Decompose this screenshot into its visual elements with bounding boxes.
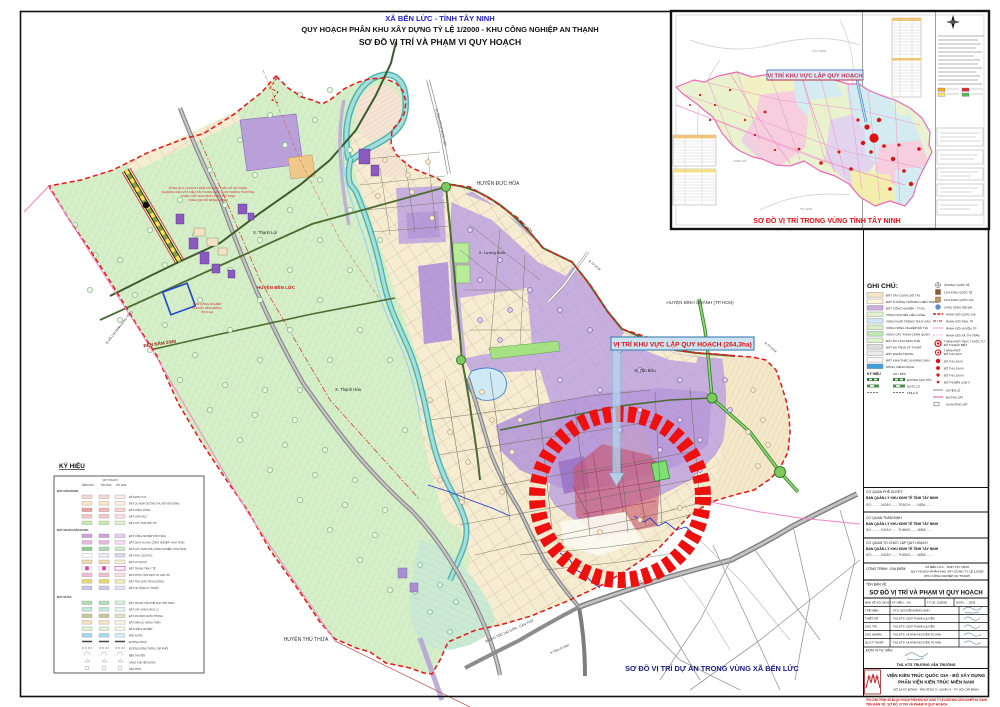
svg-text:NGÀY: ....2025: NGÀY: ....2025	[956, 601, 976, 605]
svg-text:ĐẤT PHỨC HỢP DỊCH VỤ GIẢI TRÍ: ĐẤT PHỨC HỢP DỊCH VỤ GIẢI TRÍ	[129, 574, 170, 577]
svg-text:ĐẤT NÔNG NGHIỆP: ĐẤT NÔNG NGHIỆP	[129, 628, 153, 631]
svg-text:ĐẤT CÔNG NGHIỆP KHO TÀNG: ĐẤT CÔNG NGHIỆP KHO TÀNG	[129, 535, 166, 538]
svg-text:RANH GIỚI TỈNH, TP: RANH GIỚI TỈNH, TP	[946, 319, 973, 324]
svg-text:VÙNG CÂY XANH CẢNH QUAN: VÙNG CÂY XANH CẢNH QUAN	[886, 331, 930, 336]
svg-text:ThS.KTS. HUỲNH NGUYỄN TÚ ANH: ThS.KTS. HUỲNH NGUYỄN TÚ ANH	[893, 640, 941, 645]
svg-text:THỂ HIỆN: THỂ HIỆN	[865, 608, 879, 613]
svg-text:QUỐC LỘ: QUỐC LỘ	[907, 384, 921, 389]
svg-text:ĐẤT DỊCH VỤ KHU CÔNG NGHIỆP -: ĐẤT DỊCH VỤ KHU CÔNG NGHIỆP - KHO TÀNG	[129, 542, 185, 545]
svg-text:TỶ LỆ: 1/25000: TỶ LỆ: 1/25000	[927, 600, 947, 605]
svg-text:QUY HOẠCH PHÂN KHU XÂY DỰNG TỶ: QUY HOẠCH PHÂN KHU XÂY DỰNG TỶ LỆ 1/2000	[911, 569, 984, 574]
svg-text:QUY HOẠCH: QUY HOẠCH	[102, 479, 117, 482]
svg-text:CẢNG CHUYÊN DÙNG: CẢNG CHUYÊN DÙNG	[129, 662, 156, 665]
svg-text:ĐẤT CÂY XANH KHU CÔNG NGHIỆP-: ĐẤT CÂY XANH KHU CÔNG NGHIỆP- KHO TÀNG	[129, 548, 186, 551]
svg-text:ĐẤT CÔNG NGHIỆP - TTCN: ĐẤT CÔNG NGHIỆP - TTCN	[886, 305, 925, 310]
svg-text:SỐ:..........NGÀY:.......TRÁCH: SỐ:..........NGÀY:.......TRÁCH:.......NĂ…	[866, 502, 932, 507]
svg-text:CƠ QUAN THẨM ĐỊNH: CƠ QUAN THẨM ĐỊNH	[866, 515, 902, 520]
svg-text:ĐÔ THỊ LOẠI III: ĐÔ THỊ LOẠI III	[944, 366, 964, 371]
svg-text:CƠ QUAN PHÊ DUYỆT:: CƠ QUAN PHÊ DUYỆT:	[866, 489, 903, 494]
svg-text:SỐ:..........NGÀY:.......THÁNG: SỐ:..........NGÀY:.......THÁNG:.......NĂ…	[866, 552, 932, 557]
svg-text:CỬA KHẨU QUỐC GIA: CỬA KHẨU QUỐC GIA	[944, 297, 974, 302]
svg-text:ĐÔ THỊ LOẠI IV: ĐÔ THỊ LOẠI IV	[944, 373, 964, 378]
svg-text:ĐẤT HẠ TẦNG KỸ THUẬT: ĐẤT HẠ TẦNG KỸ THUẬT	[129, 587, 159, 590]
svg-text:ĐƯỜNG NÔNG THÔN, CẤP PHỐI: ĐƯỜNG NÔNG THÔN, CẤP PHỐI	[129, 648, 168, 651]
svg-text:XÃ BẾN LỨC - TỈNH TÂY NINH: XÃ BẾN LỨC - TỈNH TÂY NINH	[385, 13, 495, 23]
svg-text:ĐẤT HẠ TẦNG KỸ THUẬT: ĐẤT HẠ TẦNG KỸ THUẬT	[886, 344, 922, 349]
svg-text:CỬA KHẨU QUỐC TẾ: CỬA KHẨU QUỐC TẾ	[944, 290, 972, 295]
svg-text:XÃ BẾN LỨC - TỈNH TÂY NINH: XÃ BẾN LỨC - TỈNH TÂY NINH	[925, 564, 969, 569]
svg-text:TỚI 2030: TỚI 2030	[116, 484, 127, 487]
svg-text:KTS. NGUYỄN ĐĂNG NINH: KTS. NGUYỄN ĐĂNG NINH	[893, 608, 930, 613]
svg-text:ĐẤT TRUNG TÂM Y TẾ: ĐẤT TRUNG TÂM Y TẾ	[129, 568, 156, 571]
svg-text:ĐẤT Ở NÔNG THÔN/DC HIỆN TRẠNG: ĐẤT Ở NÔNG THÔN/DC HIỆN TRẠNG	[886, 299, 940, 304]
svg-text:CẢNG SÔNG NỘI ĐỊA: CẢNG SÔNG NỘI ĐỊA	[944, 305, 972, 310]
svg-text:HUYỆN BÌNH CHÁNH (TP.HCM): HUYỆN BÌNH CHÁNH (TP.HCM)	[666, 298, 734, 305]
svg-text:VÙNG NÔNG NGHIỆP ĐÔ THỊ: VÙNG NÔNG NGHIỆP ĐÔ THỊ	[886, 325, 928, 330]
svg-text:SÂN PHƠI: SÂN PHƠI	[129, 668, 141, 671]
svg-text:QUY HOẠCH PHÂN KHU XÂY DỰNG TỶ: QUY HOẠCH PHÂN KHU XÂY DỰNG TỶ LỆ 1/2000…	[301, 25, 598, 34]
svg-text:HIỆN HỮU: HIỆN HỮU	[82, 484, 95, 487]
svg-text:ĐẤT CÔNG CỘNG: ĐẤT CÔNG CỘNG	[129, 509, 150, 512]
svg-text:BẾN THUYỀN: BẾN THUYỀN	[129, 655, 145, 658]
svg-text:ĐẤT TÔN GIÁO TÍN NGƯỠNG: ĐẤT TÔN GIÁO TÍN NGƯỠNG	[129, 581, 164, 584]
svg-text:VỊ TRÍ KHU VỰC LẬP QUY HOẠCH (: VỊ TRÍ KHU VỰC LẬP QUY HOẠCH (264,3ha)	[613, 340, 752, 349]
svg-text:(THEO QĐ SỐ 08/QĐ-UBND): (THEO QĐ SỐ 08/QĐ-UBND)	[188, 197, 228, 202]
svg-text:CÔNG TRÌNH - ĐỊA ĐIỂM:: CÔNG TRÌNH - ĐỊA ĐIỂM:	[866, 566, 906, 571]
svg-text:ĐẤT ĐƠN VỊ Ở: ĐẤT ĐƠN VỊ Ở	[129, 496, 147, 499]
svg-text:ĐÔ THỊ ĐẶC BIỆT: ĐÔ THỊ ĐẶC BIỆT	[944, 342, 967, 347]
svg-text:TP. HCM: TP. HCM	[800, 207, 812, 211]
svg-text:ĐƯỜNG NHỰA: ĐƯỜNG NHỰA	[129, 641, 147, 644]
svg-text:TÊN BẢN VẼ: SƠ ĐỒ VỊ TRÍ VÀ PH: TÊN BẢN VẼ: SƠ ĐỒ VỊ TRÍ VÀ PHẠM VI QUY …	[866, 702, 948, 707]
svg-text:ĐẤT DÂN DỤNG: ĐẤT DÂN DỤNG	[57, 488, 79, 493]
svg-text:ThS.KTS. HUỲNH NGUYỄN TÚ ANH: ThS.KTS. HUỲNH NGUYỄN TÚ ANH	[893, 632, 941, 637]
svg-text:RANH GIỚI XÃ, THỊ TRẤN: RANH GIỚI XÃ, THỊ TRẤN	[946, 333, 980, 338]
svg-text:ĐẤT KHO LOGISTIC: ĐẤT KHO LOGISTIC	[129, 555, 153, 558]
svg-text:ThS.KTS. NGÔ THANH QUYỀN: ThS.KTS. NGÔ THANH QUYỀN	[893, 624, 935, 629]
svg-text:ĐẤT KHAI THÁC KHOÁNG SẢN: ĐẤT KHAI THÁC KHOÁNG SẢN	[886, 357, 930, 362]
svg-text:ĐƯỜNG SẮT: ĐƯỜNG SẮT	[946, 395, 964, 400]
svg-text:CƠ QUAN TỔ CHỨC LẬP QUY HOẠCH: CƠ QUAN TỔ CHỨC LẬP QUY HOẠCH	[866, 540, 928, 545]
svg-text:ĐẤT KHÁC: ĐẤT KHÁC	[57, 594, 72, 599]
svg-text:BAN QUẢN LÝ KHU KINH TẾ TỈNH T: BAN QUẢN LÝ KHU KINH TẾ TỈNH TÂY NINH	[866, 495, 939, 500]
svg-text:KHU CÔNG NGHIỆP AN THẠNH: KHU CÔNG NGHIỆP AN THẠNH	[924, 573, 970, 578]
svg-text:HUYỆN LỘ: HUYỆN LỘ	[946, 388, 961, 393]
svg-text:KÝ HIỆU: ..AU: KÝ HIỆU: ..AU	[892, 600, 911, 605]
svg-text:ĐÔ THỊ LOẠI I: ĐÔ THỊ LOẠI I	[944, 351, 962, 356]
svg-text:ĐẤT GIÁO DỤC: ĐẤT GIÁO DỤC	[129, 516, 147, 519]
svg-text:ĐẤT NGOÀI DÂN DỤNG: ĐẤT NGOÀI DÂN DỤNG	[57, 527, 89, 532]
svg-text:ThS. KTS TRƯƠNG VĂN TRƯỜNG: ThS. KTS TRƯƠNG VĂN TRƯỜNG	[896, 662, 955, 667]
svg-text:LONG AN: LONG AN	[733, 159, 746, 163]
svg-text:ĐÔ THỊ LOẠI II: ĐÔ THỊ LOẠI II	[944, 359, 963, 364]
svg-text:KÝ HIỆU: KÝ HIỆU	[867, 371, 881, 376]
svg-text:CHỦ TRÌ: CHỦ TRÌ	[865, 624, 877, 629]
svg-text:ĐẤT CÂY XANH ĐÔ THỊ: ĐẤT CÂY XANH ĐÔ THỊ	[129, 522, 157, 525]
svg-text:SÔNG, KÊNH RẠCH: SÔNG, KÊNH RẠCH	[886, 364, 914, 369]
svg-text:ĐẤT NGHĨA TRANG: ĐẤT NGHĨA TRANG	[886, 351, 914, 356]
svg-text:(57,6 ha): (57,6 ha)	[201, 310, 213, 314]
svg-text:SỐ:..........NGÀY:.......THÁNG: SỐ:..........NGÀY:.......THÁNG:.......NĂ…	[866, 527, 932, 532]
svg-text:ĐẤT AN NINH QUỐC PHÒNG: ĐẤT AN NINH QUỐC PHÒNG	[129, 615, 163, 618]
svg-text:VÙNG NGUYÊN LIỆU CANH: VÙNG NGUYÊN LIỆU CANH	[886, 312, 925, 317]
svg-text:SƠ ĐỒ VỊ TRÍ VÀ PHẠM VI QUY HO: SƠ ĐỒ VỊ TRÍ VÀ PHẠM VI QUY HOẠCH	[359, 36, 521, 47]
svg-text:X. Thạnh Lợi: X. Thạnh Lợi	[253, 230, 277, 235]
svg-text:ĐẤT CƠ QUAN: ĐẤT CƠ QUAN	[129, 561, 147, 564]
svg-text:RANH GIỚI HUYỆN, TP: RANH GIỚI HUYỆN, TP	[946, 326, 977, 331]
svg-text:ĐƯỜNG CAO TỐC: ĐƯỜNG CAO TỐC	[907, 377, 931, 382]
svg-text:ĐẤT DÂN CƯ NÔNG THÔN: ĐẤT DÂN CƯ NÔNG THÔN	[129, 622, 161, 625]
svg-text:HUYỆN THỦ THỪA: HUYỆN THỦ THỪA	[284, 635, 329, 643]
svg-text:ĐÔ THỊ ĐẾN LOẠI V: ĐÔ THỊ ĐẾN LOẠI V	[944, 380, 970, 385]
svg-text:PHÂN VIỆN KIẾN TRÚC MIỀN NAM: PHÂN VIỆN KIẾN TRÚC MIỀN NAM	[898, 678, 974, 685]
svg-text:ĐẤT TRUNG TÂM THỂ DỤC THỂ THAO: ĐẤT TRUNG TÂM THỂ DỤC THỂ THAO	[129, 602, 174, 605]
svg-text:X. Lương Bình: X. Lương Bình	[479, 250, 505, 255]
svg-text:ĐẤT DU LỊCH SINH THÁI: ĐẤT DU LỊCH SINH THÁI	[886, 338, 921, 343]
svg-text:QL KỸ THUẬT: QL KỸ THUẬT	[865, 640, 884, 645]
svg-text:ĐƠN VỊ TƯ VẤN:: ĐƠN VỊ TƯ VẤN:	[866, 649, 893, 653]
svg-text:VỊ TRÍ KHU VỰC LẬP QUY HOẠCH: VỊ TRÍ KHU VỰC LẬP QUY HOẠCH	[767, 72, 862, 80]
svg-text:VIỆN KIẾN TRÚC QUỐC GIA - BỘ X: VIỆN KIẾN TRÚC QUỐC GIA - BỘ XÂY DỰNG	[887, 671, 986, 678]
svg-text:HUYỆN BẾN LỨC: HUYỆN BẾN LỨC	[257, 283, 296, 290]
svg-text:VÙNG NUÔI TRỒNG THỦY SẢN: VÙNG NUÔI TRỒNG THỦY SẢN	[886, 318, 931, 323]
svg-text:SỐ 14 KỲ ĐỒNG - PHƯỜNG 9 - QUẬ: SỐ 14 KỲ ĐỒNG - PHƯỜNG 9 - QUẬN 3 - TP. …	[893, 687, 978, 692]
svg-text:X. Tân Bửu: X. Tân Bửu	[634, 368, 656, 373]
svg-text:CŨ / MỚI: CŨ / MỚI	[893, 371, 906, 376]
svg-text:KÝ HIỆU: KÝ HIỆU	[59, 461, 85, 470]
svg-text:SƠ ĐỒ VỊ TRÍ VÀ PHẠM VI QUY HO: SƠ ĐỒ VỊ TRÍ VÀ PHẠM VI QUY HOẠCH	[869, 589, 982, 597]
svg-text:SÂN BAY QUỐC TẾ: SÂN BAY QUỐC TẾ	[944, 282, 969, 287]
svg-text:BAN QUẢN LÝ KHU KINH TẾ TỈNH T: BAN QUẢN LÝ KHU KINH TẾ TỈNH TÂY NINH	[866, 521, 939, 526]
svg-text:SƠ ĐỒ VỊ TRÍ DỰ ÁN TRONG VÙNG: SƠ ĐỒ VỊ TRÍ DỰ ÁN TRONG VÙNG XÃ BẾN LỨC	[625, 663, 799, 673]
svg-text:TÂY NINH: TÂY NINH	[812, 48, 826, 53]
svg-text:BẢN VẼ SỐ: QH-04: BẢN VẼ SỐ: QH-04	[865, 600, 891, 605]
svg-text:ĐẤT CÂY XANH CÁCH LY: ĐẤT CÂY XANH CÁCH LY	[129, 609, 159, 612]
svg-text:RANH GIỚI QUỐC GIA: RANH GIỚI QUỐC GIA	[946, 312, 976, 317]
svg-text:BAN QUẢN LÝ KHU KINH TẾ TỈNH T: BAN QUẢN LÝ KHU KINH TẾ TỈNH TÂY NINH	[866, 546, 939, 551]
svg-text:GA ĐƯỜNG SẮT: GA ĐƯỜNG SẮT	[946, 402, 968, 407]
svg-text:TÊN BẢN VẼ:: TÊN BẢN VẼ:	[866, 582, 887, 587]
svg-text:GHI CHÚ:: GHI CHÚ:	[867, 281, 898, 290]
svg-text:TỚI 2030: TỚI 2030	[101, 484, 112, 487]
svg-text:ThS.KTS. NGÔ THANH QUYỀN: ThS.KTS. NGÔ THANH QUYỀN	[893, 616, 935, 621]
svg-text:CHỦ NHIỆM: CHỦ NHIỆM	[865, 632, 882, 637]
svg-text:X. Thạnh Hòa: X. Thạnh Hòa	[335, 387, 361, 392]
svg-text:MẶT NƯỚC: MẶT NƯỚC	[129, 635, 143, 638]
svg-text:HUYỆN ĐỨC HÒA: HUYỆN ĐỨC HÒA	[477, 179, 520, 187]
svg-text:ĐẤT XÂY DỰNG ĐÔ THỊ: ĐẤT XÂY DỰNG ĐÔ THỊ	[886, 292, 920, 297]
svg-text:TỈNH LỘ: TỈNH LỘ	[907, 390, 919, 395]
svg-text:TÊN CÔNG TRÌNH: ĐỒ ÁN QUY HOẠC: TÊN CÔNG TRÌNH: ĐỒ ÁN QUY HOẠCH PHÂN KHU…	[866, 697, 988, 702]
svg-text:ĐẤT DL-NGHỈ DƯỠNG THU ĐÔ VEN S: ĐẤT DL-NGHỈ DƯỠNG THU ĐÔ VEN SÔNG	[129, 503, 180, 506]
svg-text:THIẾT KẾ: THIẾT KẾ	[865, 616, 878, 621]
